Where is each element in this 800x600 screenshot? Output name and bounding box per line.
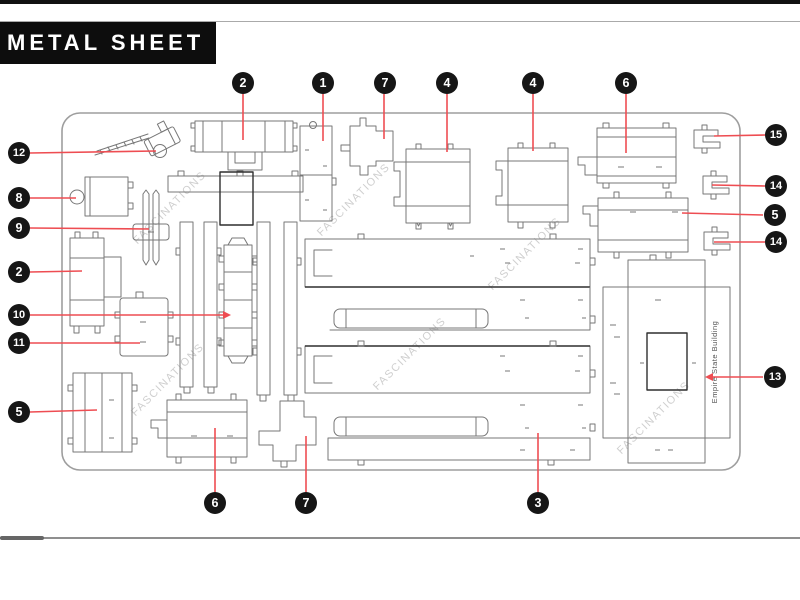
callout-1-number: 1: [320, 76, 327, 90]
callout-8-number: 8: [16, 191, 23, 205]
callout-2-number: 2: [240, 76, 247, 90]
part-outline-2-top: [191, 121, 297, 170]
part-outline-14b: [704, 227, 730, 255]
callout-14-line: [712, 185, 765, 186]
callout-2-number: 2: [16, 265, 23, 279]
callout-11-number: 11: [13, 337, 25, 349]
callout-14-number: 14: [770, 236, 783, 248]
part-outline-1: [300, 122, 336, 222]
watermark-text-2: FASCINATIONS: [486, 215, 564, 293]
part-outline-4a: [394, 144, 470, 229]
page: METAL SHEET FASCINATIONSFASCINATIONSFASC…: [0, 0, 800, 600]
callout-12: 12: [8, 142, 156, 164]
callout-5-number: 5: [16, 405, 23, 419]
callout-15-number: 15: [770, 129, 782, 141]
metal-sheet-diagram: FASCINATIONSFASCINATIONSFASCINATIONSFASC…: [0, 0, 800, 600]
callout-arrow: [705, 373, 713, 381]
part-outline-5-left: [68, 373, 137, 452]
part-outline-8: [70, 177, 133, 216]
callout-8: 8: [8, 187, 76, 209]
part-outline-10: [219, 238, 257, 363]
callout-9-number: 9: [16, 221, 23, 235]
part-outline-3: [305, 234, 595, 465]
callout-4: 4: [522, 72, 544, 151]
callout-7: 7: [295, 436, 317, 514]
callout-14-number: 14: [770, 180, 783, 192]
sheet-outline: [62, 113, 740, 470]
callout-12-line: [30, 151, 156, 153]
callout-5-line: [682, 213, 763, 215]
callout-15-line: [714, 135, 765, 136]
callout-layer: 1289210115217446151451413673: [8, 72, 787, 514]
callout-arrow: [223, 311, 231, 319]
part-outline-6-top: [578, 123, 676, 188]
footer-rule: [0, 537, 800, 539]
callout-7: 7: [374, 72, 396, 139]
callout-7-number: 7: [303, 496, 310, 510]
part-outline-4b: [496, 143, 568, 228]
part-outline-2-left: [70, 232, 121, 333]
callout-2: 2: [232, 72, 254, 140]
callout-4-number: 4: [530, 76, 537, 90]
callout-2: 2: [8, 261, 82, 283]
callout-15: 15: [714, 124, 787, 146]
callout-6: 6: [204, 428, 226, 514]
callout-4-number: 4: [444, 76, 451, 90]
callout-6-number: 6: [623, 76, 630, 90]
part-outline-13: Empire State Building: [603, 255, 730, 463]
callout-5-number: 5: [772, 208, 779, 222]
callout-1: 1: [312, 72, 334, 141]
callout-9-line: [30, 228, 149, 229]
part-outline-6-bottom: [151, 394, 247, 463]
part-outline-11: [115, 292, 173, 356]
part-13-label: Empire State Building: [710, 321, 719, 404]
part-outline-15: [694, 125, 720, 153]
callout-7-number: 7: [382, 76, 389, 90]
callout-4: 4: [436, 72, 458, 152]
part-outline-5-right: [583, 192, 688, 258]
callout-5: 5: [682, 204, 786, 226]
callout-2-line: [30, 271, 82, 272]
watermark-text-4: FASCINATIONS: [371, 315, 449, 393]
callout-6-number: 6: [212, 496, 219, 510]
callout-3: 3: [527, 433, 549, 514]
callout-3-number: 3: [535, 496, 542, 510]
callout-5-line: [30, 410, 97, 412]
callout-10-number: 10: [13, 309, 25, 321]
part-outline-7-bottom: [259, 401, 316, 467]
callout-13-number: 13: [769, 371, 781, 383]
callout-9: 9: [8, 217, 149, 239]
parts-layer: Empire State Building: [68, 118, 730, 467]
watermark-text-1: FASCINATIONS: [315, 161, 393, 239]
callout-5: 5: [8, 401, 97, 423]
callout-12-number: 12: [13, 147, 25, 159]
